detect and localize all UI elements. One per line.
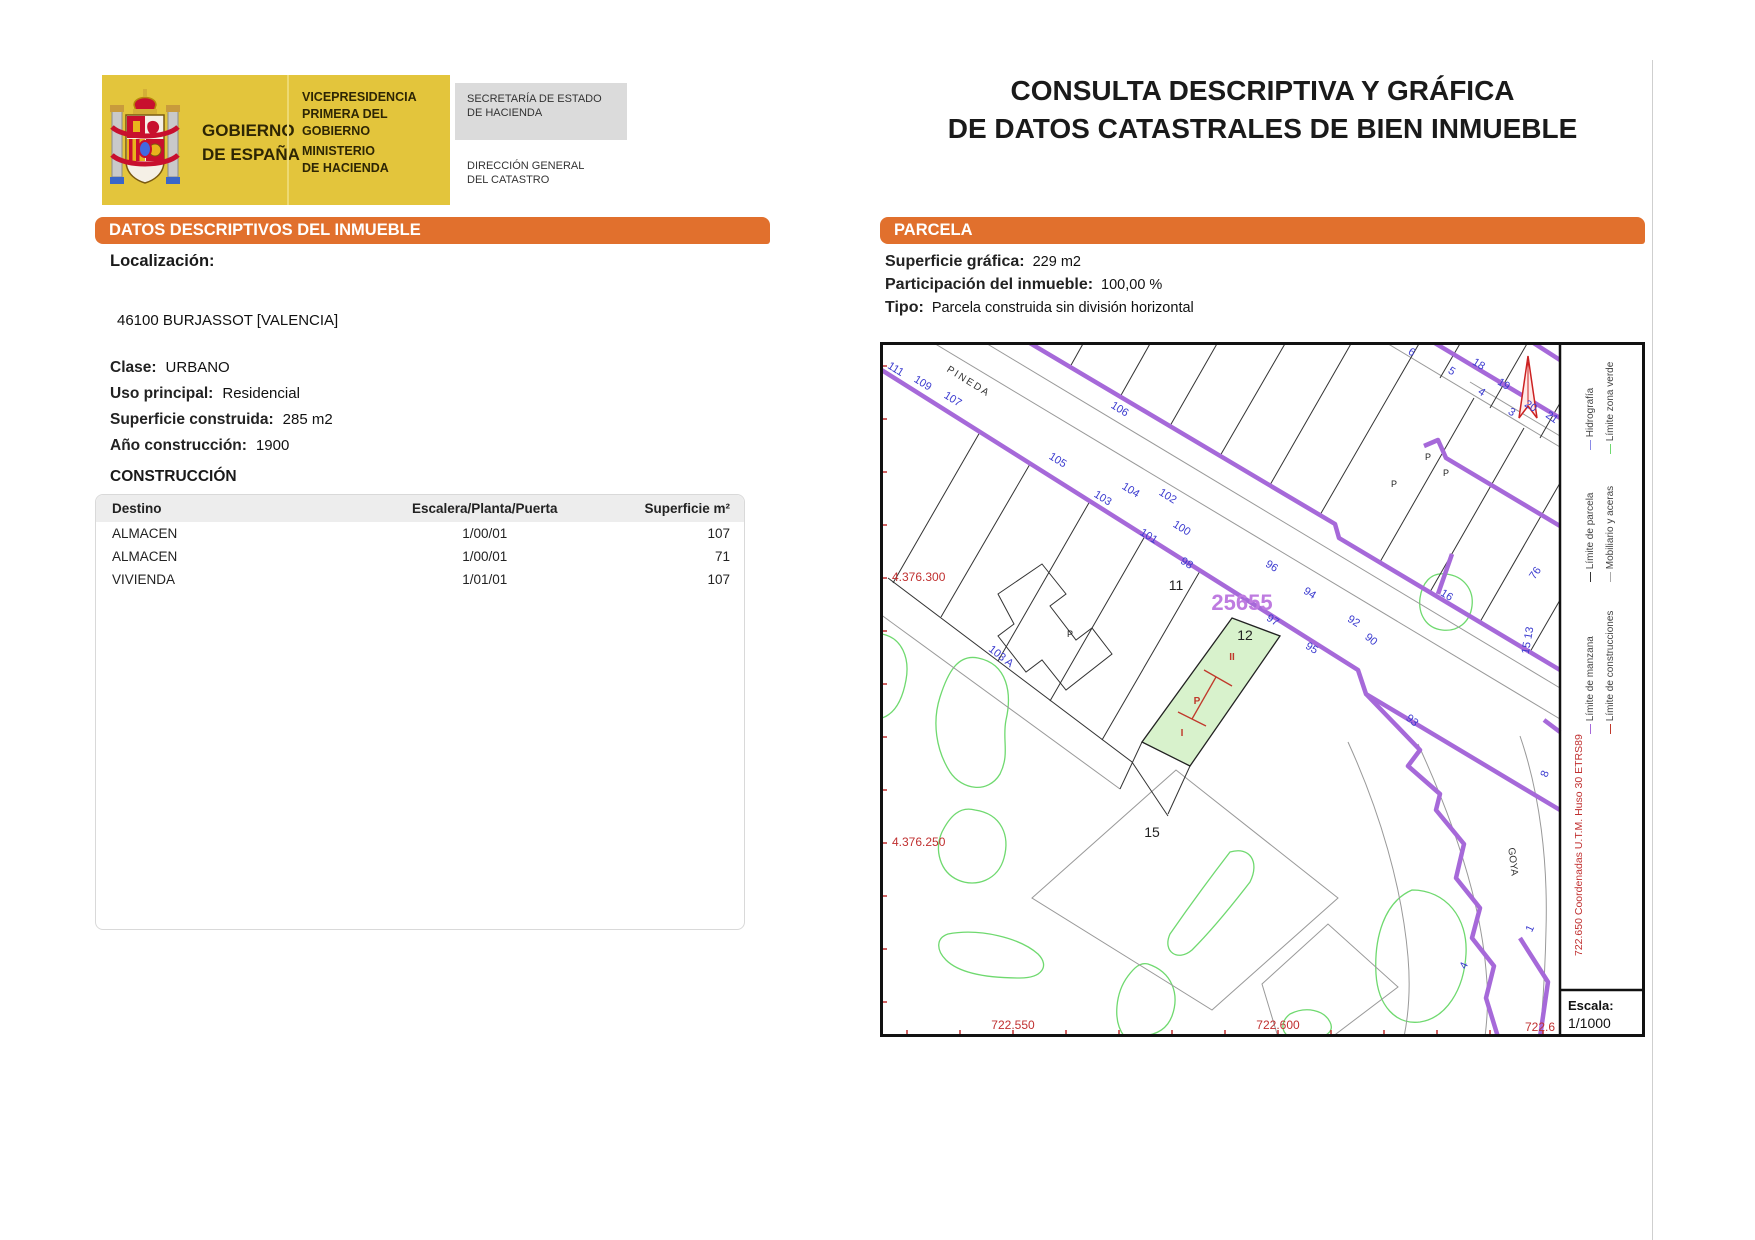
map-label: I xyxy=(1181,728,1184,739)
gov-name-line2: DE ESPAÑA xyxy=(202,143,300,167)
ministerio-label: MINISTERIO DE HACIENDA xyxy=(302,143,389,177)
localizacion-label: Localización: xyxy=(110,252,215,271)
construccion-title: CONSTRUCCIÓN xyxy=(110,468,237,486)
map-label: II xyxy=(1229,652,1235,663)
table-row: ALMACEN 1/00/01 71 xyxy=(96,545,744,568)
cell-escalera: 1/00/01 xyxy=(368,545,601,568)
section-header-parcela-label: PARCELA xyxy=(894,221,973,239)
cadastral-document-page: GOBIERNO DE ESPAÑA VICEPRESIDENCIA PRIME… xyxy=(0,0,1755,1240)
logo-yellow-panel: GOBIERNO DE ESPAÑA VICEPRESIDENCIA PRIME… xyxy=(102,75,450,205)
vice-line2: PRIMERA DEL GOBIERNO xyxy=(302,106,450,140)
utm-coords-note: 722.650 Coordenadas U.T.M. Huso 30 ETRS8… xyxy=(1573,734,1585,956)
parcel-field-tipo: Tipo:Parcela construida sin división hor… xyxy=(885,299,1194,317)
sec-line1: SECRETARÍA DE ESTADO xyxy=(467,92,627,106)
construction-table-header-row: Destino Escalera/Planta/Puerta Superfici… xyxy=(96,495,744,522)
field-clase-label: Clase: xyxy=(110,359,157,376)
legend-entry: — Hidrografía xyxy=(1585,387,1596,450)
construction-table: Destino Escalera/Planta/Puerta Superfici… xyxy=(96,495,744,591)
table-row: ALMACEN 1/00/01 107 xyxy=(96,522,744,545)
gov-name-line1: GOBIERNO xyxy=(202,119,300,143)
legend-entry: — Mobiliario y aceras xyxy=(1605,486,1616,582)
map-label: 12 xyxy=(1237,627,1253,643)
field-superficie-value: 285 m2 xyxy=(283,411,333,428)
cell-destino: VIVIENDA xyxy=(96,568,368,591)
cell-superficie: 71 xyxy=(601,545,744,568)
parcel-participacion-label: Participación del inmueble: xyxy=(885,276,1093,293)
map-label: 722.6 xyxy=(1525,1020,1555,1034)
construction-table-container: Destino Escalera/Planta/Puerta Superfici… xyxy=(95,494,745,930)
map-legend: — Hidrografía— Límite zona verde— Límite… xyxy=(1560,342,1645,1037)
map-label: P xyxy=(1194,696,1201,707)
field-superficie-construida: Superficie construida:285 m2 xyxy=(110,411,333,429)
map-label: 4.376.250 xyxy=(892,835,946,849)
page-title-line1: CONSULTA DESCRIPTIVA Y GRÁFICA xyxy=(880,72,1645,110)
map-label: P xyxy=(1443,468,1449,478)
section-header-parcela: PARCELA xyxy=(880,217,1645,244)
map-label: 11 xyxy=(1169,577,1184,593)
legend-entry: — Límite de manzana xyxy=(1585,636,1596,734)
parcel-field-participacion: Participación del inmueble:100,00 % xyxy=(885,276,1162,294)
direccion-general-label: DIRECCIÓN GENERAL DEL CATASTRO xyxy=(455,159,627,187)
sec-line2: DE HACIENDA xyxy=(467,106,627,120)
parcel-superficie-label: Superficie gráfica: xyxy=(885,253,1025,270)
spain-coat-of-arms-icon xyxy=(110,83,180,197)
field-clase-value: URBANO xyxy=(166,359,230,376)
field-uso-label: Uso principal: xyxy=(110,385,213,402)
cadastral-map-svg: PINEDA1111091071061051041031021011009896… xyxy=(880,342,1645,1037)
dir-line1: DIRECCIÓN GENERAL xyxy=(467,159,627,173)
vice-line1: VICEPRESIDENCIA xyxy=(302,89,450,106)
cell-superficie: 107 xyxy=(601,568,744,591)
property-address: 46100 BURJASSOT [VALENCIA] xyxy=(117,312,338,329)
field-uso-value: Residencial xyxy=(222,385,300,402)
parcel-superficie-value: 229 m2 xyxy=(1033,254,1081,270)
logo-divider xyxy=(287,75,289,205)
field-clase: Clase:URBANO xyxy=(110,359,230,377)
field-superficie-label: Superficie construida: xyxy=(110,411,274,428)
parcel-tipo-label: Tipo: xyxy=(885,299,924,316)
dir-line2: DEL CATASTRO xyxy=(467,173,627,187)
scale-label: Escala: xyxy=(1568,998,1614,1013)
col-header-destino: Destino xyxy=(96,495,368,522)
field-ano-value: 1900 xyxy=(256,437,289,454)
map-label: P xyxy=(1391,479,1397,489)
legend-entry: — Límite de parcela xyxy=(1585,492,1596,582)
map-label: P xyxy=(1425,452,1431,462)
map-label: 4.376.300 xyxy=(892,570,946,584)
section-header-datos-descriptivos: DATOS DESCRIPTIVOS DEL INMUEBLE xyxy=(95,217,770,244)
cell-escalera: 1/01/01 xyxy=(368,568,601,591)
cadastral-map: PINEDA1111091071061051041031021011009896… xyxy=(880,342,1645,1037)
parcel-participacion-value: 100,00 % xyxy=(1101,277,1162,293)
page-title: CONSULTA DESCRIPTIVA Y GRÁFICA DE DATOS … xyxy=(880,72,1645,148)
parcel-field-superficie-grafica: Superficie gráfica:229 m2 xyxy=(885,253,1081,271)
col-header-superficie: Superficie m² xyxy=(601,495,744,522)
table-row: VIVIENDA 1/01/01 107 xyxy=(96,568,744,591)
min-line2: DE HACIENDA xyxy=(302,160,389,177)
vicepresidencia-label: VICEPRESIDENCIA PRIMERA DEL GOBIERNO xyxy=(302,89,450,140)
parcel-tipo-value: Parcela construida sin división horizont… xyxy=(932,300,1194,316)
field-ano-construccion: Año construcción:1900 xyxy=(110,437,289,455)
legend-entry: — Límite de construcciones xyxy=(1605,611,1616,734)
col-header-escalera: Escalera/Planta/Puerta xyxy=(368,495,601,522)
page-edge-line xyxy=(1652,60,1653,1240)
map-label: P xyxy=(1067,629,1073,639)
cell-destino: ALMACEN xyxy=(96,522,368,545)
min-line1: MINISTERIO xyxy=(302,143,389,160)
gov-name: GOBIERNO DE ESPAÑA xyxy=(202,119,300,167)
map-label: 722.550 xyxy=(991,1018,1035,1032)
map-label: 25655 xyxy=(1211,590,1272,615)
legend-entry: — Límite zona verde xyxy=(1605,361,1616,454)
section-header-datos-label: DATOS DESCRIPTIVOS DEL INMUEBLE xyxy=(109,221,421,239)
cell-superficie: 107 xyxy=(601,522,744,545)
cell-destino: ALMACEN xyxy=(96,545,368,568)
secretaria-label: SECRETARÍA DE ESTADO DE HACIENDA xyxy=(455,83,627,140)
scale-value: 1/1000 xyxy=(1568,1015,1611,1031)
cell-escalera: 1/00/01 xyxy=(368,522,601,545)
government-header: GOBIERNO DE ESPAÑA VICEPRESIDENCIA PRIME… xyxy=(102,75,627,205)
map-label: 722.600 xyxy=(1256,1018,1300,1032)
field-ano-label: Año construcción: xyxy=(110,437,247,454)
page-title-line2: DE DATOS CATASTRALES DE BIEN INMUEBLE xyxy=(880,110,1645,148)
map-label: 15 xyxy=(1144,824,1160,840)
field-uso-principal: Uso principal:Residencial xyxy=(110,385,300,403)
